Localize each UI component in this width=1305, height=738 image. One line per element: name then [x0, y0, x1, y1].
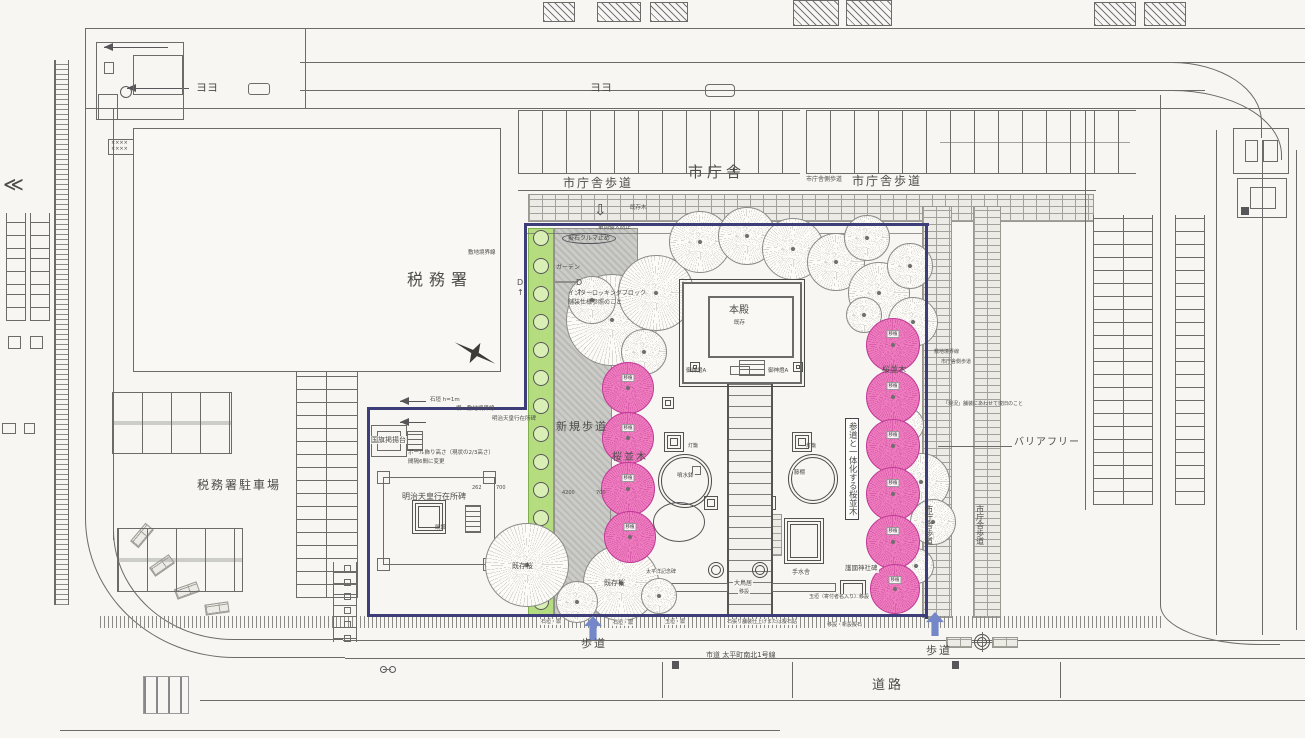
- street-fixture: [8, 336, 21, 349]
- road-line: [345, 658, 1305, 659]
- sakura-row-right: 桜並木: [882, 365, 906, 375]
- hatched-bay: [793, 0, 839, 26]
- street-fixture: [24, 423, 35, 434]
- leader-arrow-icon: [400, 401, 426, 402]
- city-hall-sidewalk-paving: [528, 194, 1094, 222]
- bollard: [344, 635, 351, 642]
- lane-tick: [1060, 662, 1061, 698]
- sando-cherry-note: 参道と一体化する桜並木: [845, 418, 859, 520]
- bollard: [344, 621, 351, 628]
- hatched-bay: [543, 2, 575, 22]
- street-fixture: [2, 423, 16, 434]
- corner-building-room: [104, 62, 114, 74]
- street-parking: [30, 213, 50, 321]
- cherry-tree-chip: 移植: [622, 374, 635, 382]
- bollard: [344, 593, 351, 600]
- road-marking: [248, 83, 270, 95]
- section-d-1: D ↑: [517, 278, 524, 297]
- pole-note-2: 間隔6間に変更: [408, 459, 445, 466]
- garden-shrub: [533, 370, 549, 386]
- otorii-sub: 移設: [738, 589, 750, 595]
- road-line: [1085, 110, 1086, 510]
- utility-building: [1233, 128, 1289, 174]
- barrier-free-leader-line: [938, 446, 1012, 447]
- cherry-tree: 移植: [866, 467, 920, 521]
- city-hall-walk-left: 市庁舎歩道: [563, 176, 633, 190]
- honden-building: [708, 296, 794, 358]
- plinth-corner-post: [377, 558, 390, 571]
- road-mark-yo-2: ヨヨ: [590, 81, 612, 94]
- flag-stand-label: 国旗掲揚台: [370, 436, 407, 444]
- tamagaki-note: 玉垣（寄付者名入り）移設: [808, 594, 870, 600]
- cherry-tree-chip: 移植: [624, 523, 637, 531]
- torii-cross-wall: [772, 583, 836, 592]
- road-marking: [705, 84, 735, 97]
- existing-sakura-2: 既存桜: [604, 579, 625, 587]
- pond: [653, 502, 705, 542]
- hatched-bay: [1144, 2, 1186, 26]
- lane-tick: [792, 662, 793, 698]
- plinth-corner-post: [377, 471, 390, 484]
- street-parking: [6, 213, 26, 321]
- garden-shrub: [533, 482, 549, 498]
- walk-vertical-a: 市庁舎歩道: [924, 505, 934, 545]
- cherry-tree: 移植: [866, 370, 920, 424]
- monument-steps: [465, 505, 481, 533]
- cherry-tree-chip: 移植: [622, 474, 635, 482]
- plinth-corner-post: [483, 471, 496, 484]
- garden-shrub: [533, 230, 549, 246]
- stone-lantern: [664, 432, 684, 452]
- sakura-row-center: 桜並木: [612, 452, 648, 464]
- garden-shrub: [533, 314, 549, 330]
- west-sidewalk-paving: [55, 60, 69, 605]
- dim-700b: 700: [596, 490, 606, 496]
- cherry-tree: 移植: [866, 515, 920, 569]
- leader-arrow-icon: [400, 422, 426, 423]
- existing-tree: [641, 578, 677, 614]
- hatched-bay: [597, 2, 641, 22]
- bollard: [344, 565, 351, 572]
- torii-pillar: [708, 562, 724, 578]
- honden-sub: 既存: [734, 320, 745, 327]
- site-boundary-note: 敷地境界線: [468, 250, 496, 257]
- garden-label: ガーデン: [556, 264, 580, 271]
- utility-fixture: [1263, 140, 1278, 162]
- road-label: 道路: [872, 678, 904, 694]
- flag-stand-steps: [407, 431, 423, 451]
- site-boundary: [524, 223, 527, 410]
- manhole: [120, 86, 132, 98]
- garden-shrub: [533, 426, 549, 442]
- garden-shrub: [533, 286, 549, 302]
- hatched-bay: [846, 0, 892, 26]
- corner-building-room: [98, 94, 118, 120]
- stall-divider: [1123, 215, 1124, 505]
- tax-office-building: [133, 128, 501, 372]
- utility-fixture: [1250, 187, 1276, 209]
- site-boundary: [925, 223, 928, 619]
- no-entry-note: 車両侵入防止: [598, 225, 631, 232]
- road-line: [85, 108, 1305, 109]
- leader-tamagaki: 玉垣・塀: [664, 619, 686, 625]
- road-name: 市道 太平町南北1号線: [706, 651, 776, 659]
- tax-office-label: 税務署: [407, 270, 473, 289]
- torii-pillar: [752, 562, 768, 578]
- road-line: [200, 700, 1305, 701]
- pavement-note: 「現況」舗装にあわせて復旧のこと: [943, 401, 1023, 407]
- road-line: [300, 90, 1205, 91]
- sidewalk-ramp: [333, 562, 357, 642]
- fujidana-label: 藤棚: [793, 470, 806, 477]
- road-line: [305, 28, 306, 108]
- lane-tick: [662, 662, 663, 698]
- stone-wall-note: 石垣 h=1m: [430, 397, 460, 404]
- cherry-tree: 移植: [866, 419, 920, 473]
- road-mark-yo-1: ヨヨ: [196, 81, 218, 94]
- corner-building-room: [133, 55, 183, 95]
- road-line: [113, 108, 114, 540]
- chozuya-pavilion: [784, 518, 824, 564]
- stall-divider: [940, 142, 1130, 143]
- interlocking-sub: 舗装仕様参照のこと: [568, 299, 622, 306]
- parking-stalls: [112, 392, 232, 454]
- fountain-basin: [658, 454, 712, 508]
- dim-700a: 700: [496, 485, 506, 491]
- site-boundary: [524, 223, 929, 226]
- memorial-label: 太平洋記念碑: [645, 569, 677, 575]
- cherry-tree-chip: 移植: [887, 431, 900, 439]
- utility-fixture: [1241, 207, 1249, 215]
- boundary-tiny: 敷地境界線: [934, 349, 959, 355]
- xxxx-mark: ×××× ××××: [111, 140, 128, 152]
- walk-vertical-b: 市庁舎歩道: [975, 505, 985, 545]
- city-hall-walk-right: 市庁舎歩道: [852, 174, 922, 188]
- road-line: [300, 62, 1305, 63]
- road-fixture: [672, 661, 679, 669]
- city-hall-label: 市庁舎: [688, 163, 745, 181]
- tax-office-parking-label: 税務署駐車場: [197, 478, 281, 492]
- existing-tree-note: 既存木: [630, 205, 647, 212]
- site-boundary: [367, 614, 928, 617]
- road-line: [1160, 95, 1161, 605]
- east-parking-column: [1175, 215, 1205, 505]
- cherry-tree-chip: 移植: [887, 527, 900, 535]
- road-line: [85, 28, 86, 520]
- curb-stone: [992, 637, 1018, 648]
- chozuya-label: 手水舎: [791, 569, 811, 576]
- parking-stalls: [117, 528, 243, 592]
- road-line: [343, 640, 1305, 641]
- cherry-tree-chip: 移植: [889, 576, 902, 584]
- walk-label-right: 歩道: [926, 644, 952, 657]
- existing-set-note: 既設: [435, 525, 446, 532]
- road-line: [85, 28, 1305, 29]
- otorii-label: 大鳥居: [733, 580, 753, 587]
- stone-lantern: [792, 432, 812, 452]
- existing-tree: [844, 215, 890, 261]
- leader-relocate-stone: 移設・新設擬石: [826, 622, 863, 628]
- garden-shrub: [533, 342, 549, 358]
- pole-note-1: ポール飾り高さ（現状の2/3高さ）: [408, 450, 494, 457]
- cherry-tree: 移植: [602, 362, 654, 414]
- bicycle-icon: [383, 669, 391, 670]
- road-corner-curve: [1160, 598, 1280, 645]
- parking-stalls: [518, 110, 800, 174]
- cherry-tree-chip: 移植: [622, 424, 635, 432]
- utility-fixture: [1245, 140, 1258, 162]
- toro-2: 灯籠: [806, 443, 816, 449]
- hollow-arrow-down: ⇩: [594, 201, 607, 219]
- section-d-2: D ↑: [576, 278, 583, 297]
- cherry-tree: 移植: [866, 318, 920, 372]
- meiji-monument-label: 明治天皇行在所碑: [402, 492, 466, 502]
- cherry-tree-chip: 移植: [887, 479, 900, 487]
- leader-stone-paving: 石張り舗装仕上げまたは擬石貼: [726, 619, 798, 625]
- bollard: [344, 579, 351, 586]
- cherry-tree: 移植: [601, 462, 655, 516]
- lantern-a-left: 御神燈A: [686, 368, 706, 375]
- side-walk-tiny: 市庁舎側歩道: [941, 359, 971, 365]
- road-chevron: ≪: [3, 172, 24, 196]
- leader-ishigaki-2: 石垣・塀: [612, 620, 634, 626]
- dim-4200: 4200: [562, 490, 575, 496]
- road-fixture: [952, 661, 959, 669]
- city-hall-walk-strip-east: [973, 206, 1001, 618]
- hatched-bay: [1094, 2, 1136, 26]
- survey-marker-cross: [982, 632, 983, 652]
- walk-label-left: 歩道: [581, 637, 607, 650]
- stall-divider: [326, 372, 327, 598]
- leader-ishigaki-1: 石垣・塀: [540, 619, 562, 625]
- barrier-free-label: バリアフリー: [1014, 437, 1080, 449]
- city-hall-side-walk-note: 市庁舎側歩道: [806, 176, 842, 183]
- drain-pit: [662, 397, 674, 409]
- lantern-a-right: 御神燈A: [768, 368, 788, 375]
- new-sidewalk-label: 新規歩道: [556, 420, 608, 433]
- road-line: [1296, 150, 1297, 630]
- wisteria-trellis: [788, 454, 838, 504]
- cherry-tree-chip: 移植: [887, 330, 900, 338]
- street-fixture: [30, 336, 43, 349]
- site-plan-canvas: 市庁舎市庁舎歩道市庁舎歩道市庁舎側歩道税務署税務署駐車場敷地境界線本殿既存御神燈…: [0, 0, 1305, 738]
- site-boundary: [367, 407, 527, 410]
- gokoku-monument: 護國神社碑: [844, 565, 879, 573]
- fountain-label: 噴水鉢: [676, 473, 695, 480]
- crosswalk-stripes: [143, 676, 189, 714]
- cherry-tree: 移植: [604, 511, 656, 563]
- stone-lantern: [704, 496, 718, 510]
- road-line: [1216, 130, 1217, 635]
- existing-sakura-1: 既存桜: [512, 562, 533, 570]
- bollard: [344, 607, 351, 614]
- garden-shrub: [533, 398, 549, 414]
- fence-boundary-note: 塀・敷地境界線: [456, 406, 495, 413]
- garden-shrub: [533, 258, 549, 274]
- shrine-lantern: [793, 362, 803, 372]
- road-line: [60, 730, 780, 731]
- cherry-tree-chip: 移植: [887, 382, 900, 390]
- hatched-bay: [650, 2, 688, 22]
- toro-1: 灯籠: [688, 443, 698, 449]
- dim-262: 262: [472, 485, 482, 491]
- meiji-leader-note: 明治天皇行在所碑: [492, 416, 536, 423]
- garden-shrub: [533, 454, 549, 470]
- honden-label: 本殿: [729, 305, 749, 317]
- offering-box: [730, 366, 750, 375]
